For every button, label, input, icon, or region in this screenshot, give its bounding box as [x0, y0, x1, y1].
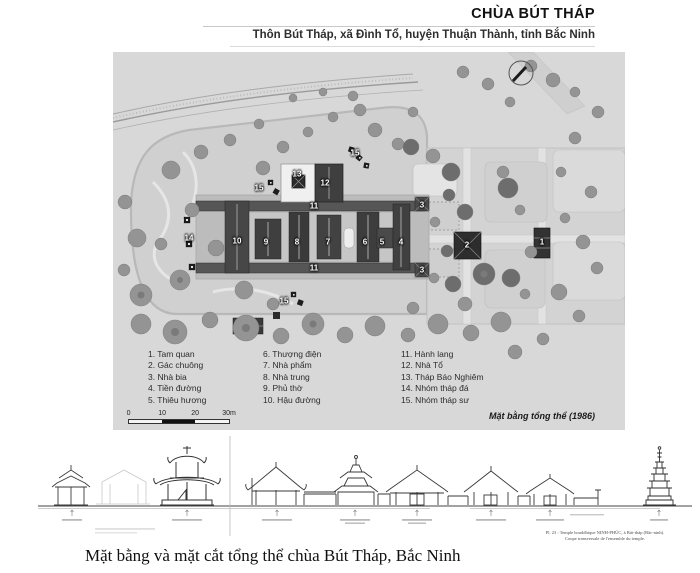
gate-elevation — [52, 465, 90, 505]
plan-marker-7: 7 — [326, 238, 330, 247]
legend-item-12: 12. Nhà Tổ — [401, 360, 484, 371]
plan-marker-1: 1 — [540, 238, 544, 247]
plan-caption: Mặt bằng tổng thể (1986) — [365, 411, 595, 421]
legend-item-8: 8. Nhà trung — [263, 372, 321, 383]
scale-tick: 0 — [127, 410, 131, 417]
screenshot-root: { "header": { "title": "CHÙA BÚT THÁP", … — [0, 0, 700, 573]
cross-section-panel: Pl. 23 : Temple bouddhique NINH-PHÚC, à … — [0, 434, 700, 546]
plan-marker-15: 15 — [255, 184, 264, 193]
plan-marker-11: 11 — [310, 202, 318, 211]
plan-marker-15: 15 — [280, 297, 289, 306]
site-plan-panel: 1233456789101111121314151515 1. Tam quan… — [113, 52, 625, 430]
plan-marker-10: 10 — [233, 237, 242, 246]
pagoda-elevation — [643, 447, 676, 505]
plan-marker-6: 6 — [363, 238, 367, 247]
legend-item-3: 3. Nhà bia — [148, 372, 206, 383]
legend-item-14: 14. Nhóm tháp đá — [401, 383, 484, 394]
plan-marker-5: 5 — [380, 238, 384, 247]
plan-marker-4: 4 — [399, 238, 403, 247]
figure-caption: Mặt bằng và mặt cắt tổng thể chùa Bút Th… — [85, 546, 645, 566]
plan-marker-3: 3 — [420, 266, 424, 275]
legend-column-3: 11. Hành lang12. Nhà Tổ13. Tháp Báo Nghi… — [401, 349, 484, 406]
legend-item-5: 5. Thiêu hương — [148, 395, 206, 406]
plan-marker-13: 13 — [293, 170, 302, 179]
scale-bar: 0102030m — [128, 410, 238, 428]
plan-marker-9: 9 — [264, 238, 268, 247]
scale-tick: 10 — [158, 410, 166, 417]
plan-marker-15: 15 — [351, 149, 360, 158]
legend-item-1: 1. Tam quan — [148, 349, 206, 360]
legend-item-9: 9. Phủ thờ — [263, 383, 321, 394]
legend-item-15: 15. Nhóm tháp sư — [401, 395, 484, 406]
plan-marker-8: 8 — [295, 238, 299, 247]
plan-marker-11: 11 — [310, 264, 318, 273]
legend-item-10: 10. Hậu đường — [263, 395, 321, 406]
legend-column-2: 6. Thượng điện7. Nhà phẩm8. Nhà trung9. … — [263, 349, 321, 406]
scale-tick-labels: 0102030m — [128, 410, 238, 418]
legend-column-1: 1. Tam quan2. Gác chuông3. Nhà bia4. Tiề… — [148, 349, 206, 406]
faint-building — [96, 470, 150, 504]
plan-marker-3: 3 — [420, 201, 424, 210]
plan-marker-14: 14 — [185, 234, 194, 243]
scale-tick: 30m — [222, 410, 236, 417]
plan-marker-12: 12 — [321, 179, 330, 188]
scale-fill-segment — [162, 420, 195, 423]
legend-item-7: 7. Nhà phẩm — [263, 360, 321, 371]
page-title: CHÙA BÚT THÁP — [0, 6, 595, 22]
legend-item-11: 11. Hành lang — [401, 349, 484, 360]
section-caption: Pl. 23 : Temple bouddhique NINH-PHÚC, à … — [520, 530, 690, 541]
section-caption-line2: Coupe transversale de l'ensemble du temp… — [520, 536, 690, 542]
scale-strip — [128, 419, 230, 424]
subtitle-divider — [230, 46, 595, 47]
plan-marker-2: 2 — [465, 241, 469, 250]
page-subtitle: Thôn Bút Tháp, xã Đình Tổ, huyện Thuận T… — [0, 29, 595, 41]
legend-item-4: 4. Tiền đường — [148, 383, 206, 394]
legend-item-13: 13. Tháp Báo Nghiêm — [401, 372, 484, 383]
legend-item-2: 2. Gác chuông — [148, 360, 206, 371]
ground-line — [38, 506, 692, 509]
scale-tick: 20 — [191, 410, 199, 417]
legend-item-6: 6. Thượng điện — [263, 349, 321, 360]
hall-range-elevation — [246, 456, 601, 506]
bell-tower-elevation — [154, 446, 221, 505]
header-divider — [203, 26, 595, 27]
